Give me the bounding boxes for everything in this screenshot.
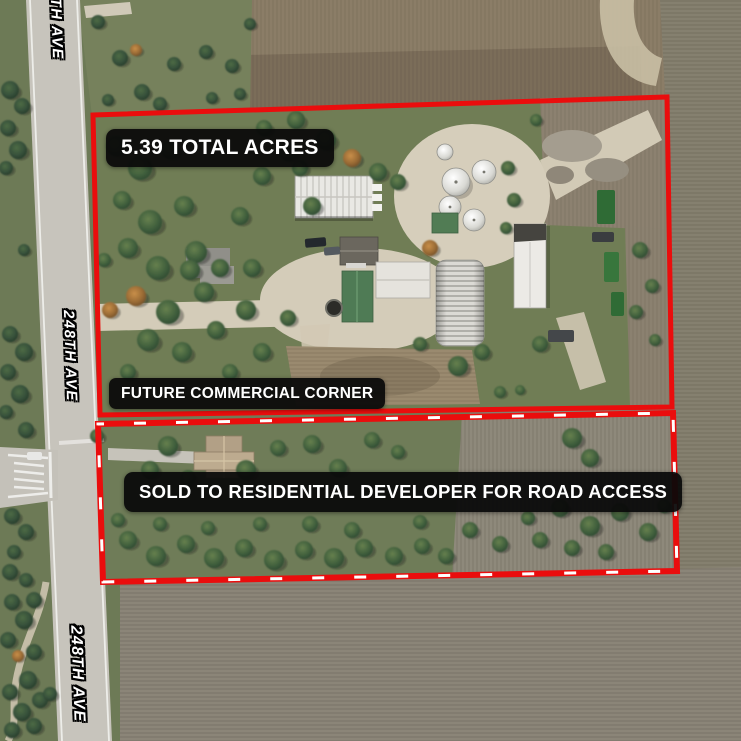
east-barn-building	[514, 224, 550, 308]
sold-parcel-label: SOLD TO RESIDENTIAL DEVELOPER FOR ROAD A…	[124, 472, 682, 512]
road-label-248th-ave-top: 248TH AVE	[46, 0, 66, 60]
green-shed	[432, 213, 458, 233]
green-roof-building	[342, 271, 373, 322]
future-commercial-label: FUTURE COMMERCIAL CORNER	[109, 378, 385, 409]
road-label-248th-ave-bottom: 248TH AVE	[66, 625, 87, 723]
acreage-label: 5.39 TOTAL ACRES	[106, 129, 334, 167]
road-label-248th-ave-middle: 248TH AVE	[60, 310, 80, 402]
workshop-building	[376, 262, 430, 298]
gabled-house	[340, 237, 378, 268]
vehicle	[305, 237, 327, 248]
aerial-imagery	[0, 0, 741, 741]
side-road	[0, 447, 58, 508]
vehicle	[324, 246, 341, 255]
car	[27, 452, 42, 460]
round-tank	[326, 300, 342, 316]
quonset-building	[436, 260, 484, 346]
aerial-map: 248TH AVE 248TH AVE 248TH AVE 5.39 TOTAL…	[0, 0, 741, 741]
